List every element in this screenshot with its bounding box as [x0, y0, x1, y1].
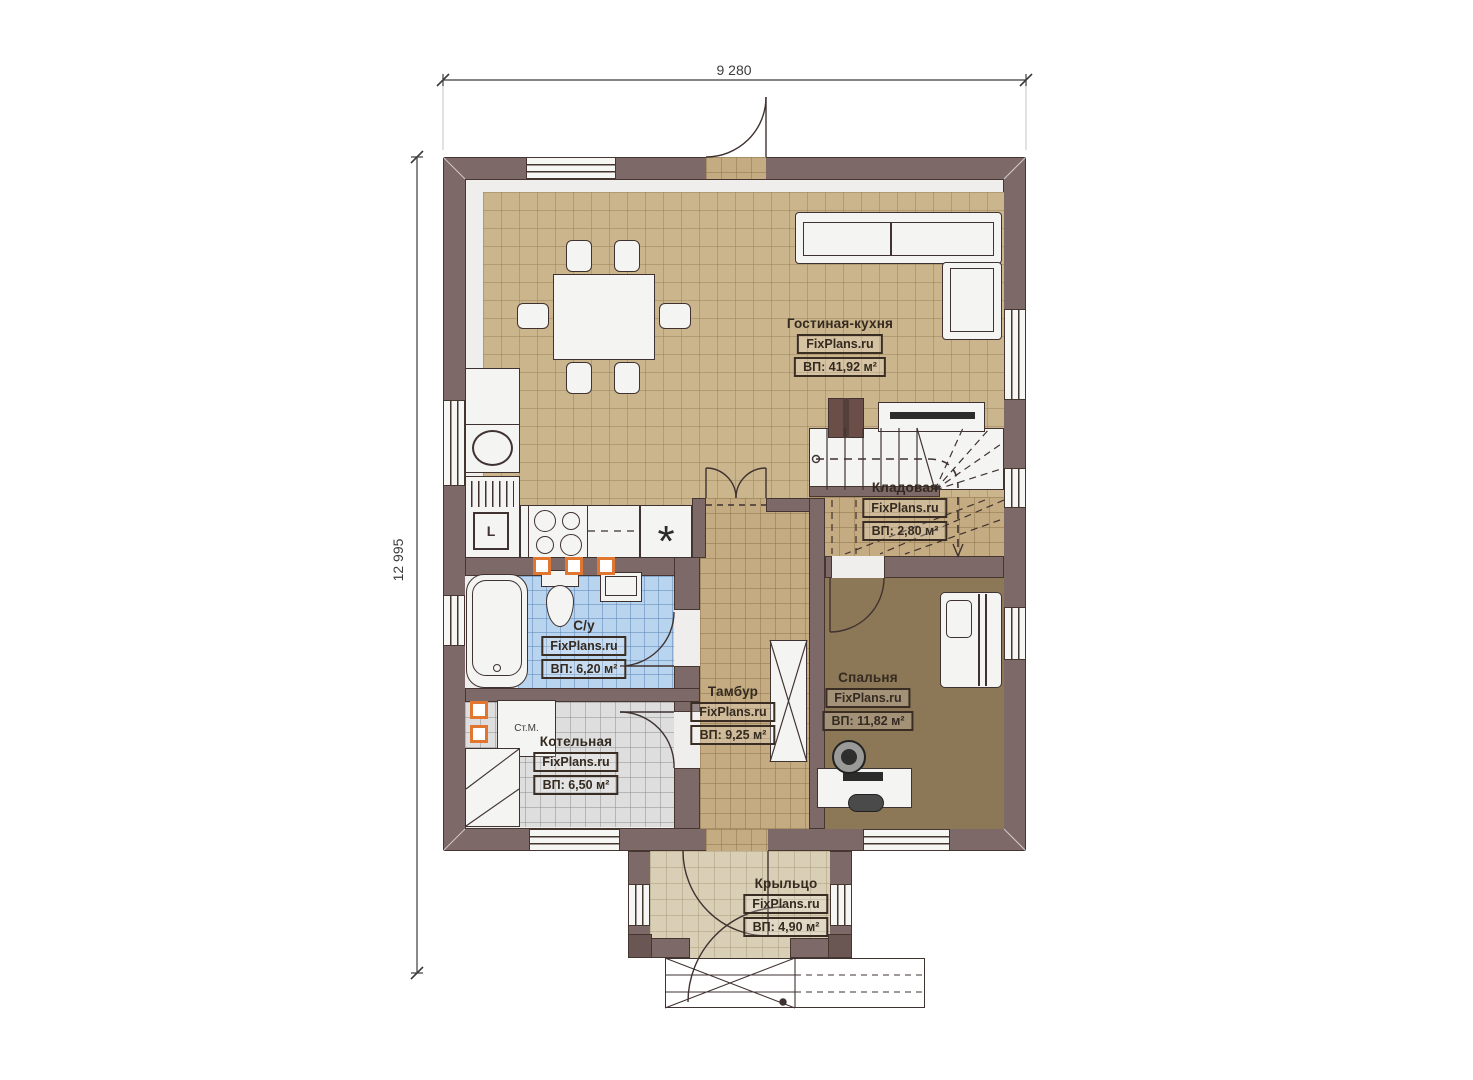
window-left-bathroom — [443, 595, 465, 646]
bathtub-drain — [493, 664, 501, 672]
boiler-unit-letter: L — [487, 523, 496, 539]
entry-threshold-top — [706, 157, 766, 179]
dimension-width-label: 9 280 — [716, 62, 751, 78]
bathtub-inner — [472, 580, 522, 676]
window-bottom-boiler — [529, 829, 620, 851]
sofa-chaise-seam — [950, 268, 994, 332]
room-name: Тамбур — [708, 684, 758, 699]
wall-hall-left-a — [674, 556, 700, 610]
porch-pillar — [628, 934, 652, 958]
room-name: Гостиная-кухня — [787, 316, 893, 331]
wall-bedroom-top-a — [825, 556, 832, 578]
tv-screen — [890, 412, 975, 419]
heating-manifold — [533, 557, 551, 575]
area-tag: ВП: 41,92 м² — [794, 357, 886, 377]
porch-pillar — [828, 934, 852, 958]
desk-chair — [848, 794, 884, 812]
area-tag: ВП: 11,82 м² — [822, 711, 913, 731]
entry-threshold-bottom — [706, 829, 768, 851]
window-top — [526, 157, 616, 179]
room-label-hallway: Тамбур FixPlans.ru ВП: 9,25 м² — [690, 684, 775, 745]
bed-fold-line — [978, 594, 980, 686]
fireplace-plant-cross — [843, 398, 849, 438]
stove-burner — [534, 510, 556, 532]
porch-rail-right — [790, 938, 830, 958]
stove-burner — [560, 534, 582, 556]
porch-rail-left — [650, 938, 690, 958]
chair — [517, 303, 549, 329]
cellar-hatch — [465, 748, 520, 827]
brand-tag: FixPlans.ru — [862, 498, 947, 518]
porch-steps — [665, 958, 925, 1008]
wall-fridge-hall — [692, 498, 706, 558]
fridge: * — [640, 505, 692, 558]
window-bottom-bedroom — [863, 829, 950, 851]
room-name: Кладовая — [872, 480, 938, 495]
sofa-back-line — [803, 222, 994, 256]
pot-plant-lid — [841, 749, 857, 765]
brand-tag: FixPlans.ru — [743, 894, 828, 914]
area-tag: ВП: 9,25 м² — [691, 725, 776, 745]
brand-tag: FixPlans.ru — [825, 688, 910, 708]
window-right-living — [1004, 309, 1026, 400]
heating-manifold — [597, 557, 615, 575]
brand-tag: FixPlans.ru — [541, 636, 626, 656]
chair — [614, 240, 640, 272]
wall-bedroom-top-b — [884, 556, 1004, 578]
room-name: Спальня — [838, 670, 898, 685]
room-label-living: Гостиная-кухня FixPlans.ru ВП: 41,92 м² — [787, 316, 893, 377]
window-right-stairs — [1004, 468, 1026, 508]
washing-machine-label: Ст.М. — [514, 723, 539, 734]
boiler-unit-hatch — [471, 481, 514, 507]
chair — [659, 303, 691, 329]
meter-box — [470, 701, 488, 719]
sofa-seam — [890, 222, 892, 256]
bed-fold-line2 — [985, 594, 987, 686]
dimension-top — [437, 74, 1032, 150]
dimension-height-label: 12 995 — [390, 539, 406, 582]
stove-burner — [536, 536, 554, 554]
room-label-porch: Крыльцо FixPlans.ru ВП: 4,90 м² — [743, 876, 828, 937]
room-name: Крыльцо — [755, 876, 818, 891]
chair — [566, 362, 592, 394]
floor-plan-canvas: L * Ст.М. — [0, 0, 1473, 1080]
room-label-bathroom: С/у FixPlans.ru ВП: 6,20 м² — [541, 618, 626, 679]
room-label-storage: Кладовая FixPlans.ru ВП: 2,80 м² — [862, 480, 947, 541]
door-top-entrance — [706, 97, 766, 157]
meter-box — [470, 725, 488, 743]
room-name: С/у — [573, 618, 595, 633]
heating-manifold — [565, 557, 583, 575]
freezer-icon: * — [657, 537, 674, 547]
room-label-bedroom: Спальня FixPlans.ru ВП: 11,82 м² — [822, 670, 913, 731]
brand-tag: FixPlans.ru — [533, 752, 618, 772]
area-tag: ВП: 4,90 м² — [744, 917, 829, 937]
porch-window-right — [830, 884, 852, 926]
chair — [566, 240, 592, 272]
kitchen-counter — [465, 368, 520, 426]
room-name: Котельная — [540, 734, 612, 749]
area-tag: ВП: 6,50 м² — [534, 775, 619, 795]
bed-pillow — [946, 600, 972, 638]
boiler-unit-box: L — [473, 512, 509, 550]
dimension-left — [411, 151, 423, 979]
wall-hall-left-c — [674, 768, 700, 829]
porch-window-left — [628, 884, 650, 926]
room-label-boiler: Котельная FixPlans.ru ВП: 6,50 м² — [533, 734, 618, 795]
chair — [614, 362, 640, 394]
stove-burner — [562, 512, 580, 530]
area-tag: ВП: 2,80 м² — [863, 521, 948, 541]
window-left-kitchen — [443, 400, 465, 486]
area-tag: ВП: 6,20 м² — [542, 659, 627, 679]
window-right-bedroom — [1004, 607, 1026, 660]
brand-tag: FixPlans.ru — [690, 702, 775, 722]
bath-sink-inner — [605, 576, 637, 596]
dining-table — [553, 274, 655, 360]
brand-tag: FixPlans.ru — [797, 334, 882, 354]
kitchen-sink-bowl — [472, 430, 513, 466]
